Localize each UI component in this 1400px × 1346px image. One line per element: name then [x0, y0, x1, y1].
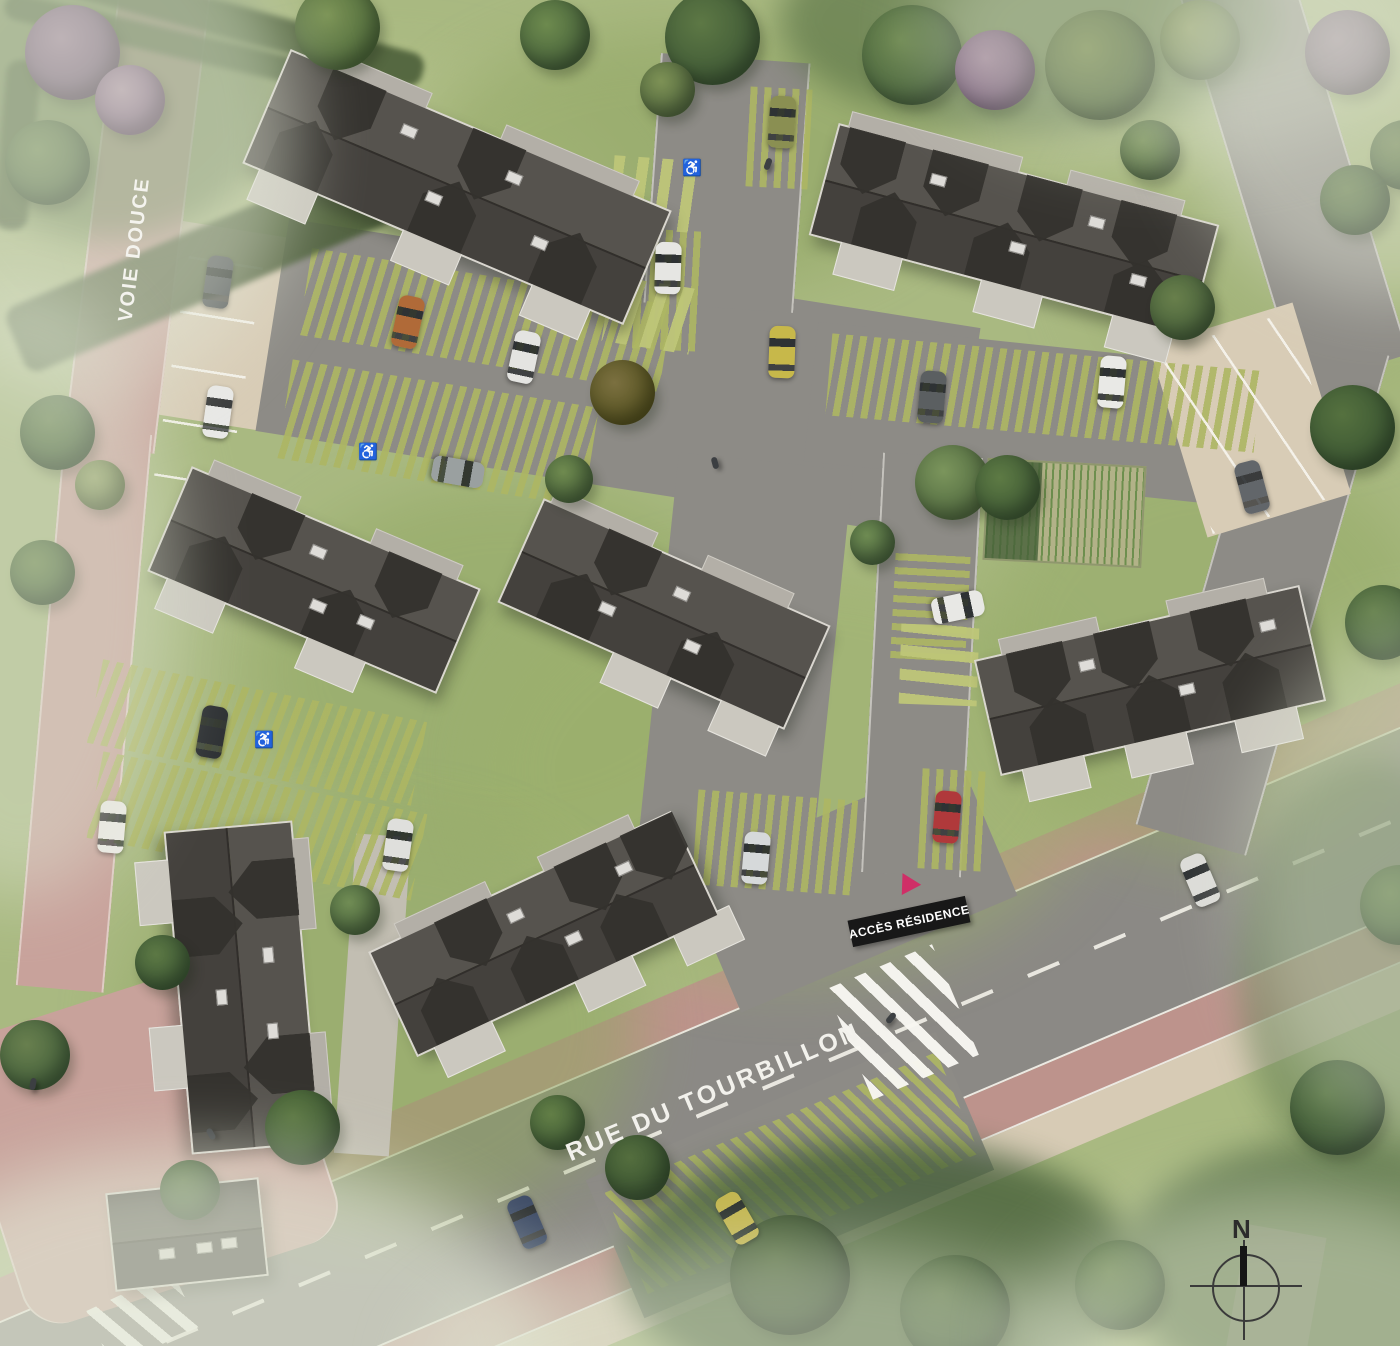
car [654, 242, 682, 295]
wheelchair-marking: ♿ [358, 442, 378, 462]
tree [1310, 385, 1395, 470]
car [768, 326, 796, 379]
tree [95, 65, 165, 135]
compass-rose: N [1188, 1212, 1308, 1342]
car [1097, 355, 1127, 409]
tree [265, 1090, 340, 1165]
parking-stalls [692, 790, 858, 896]
tree [160, 1160, 220, 1220]
tree [955, 30, 1035, 110]
tree [135, 935, 190, 990]
tree [20, 395, 95, 470]
tree [850, 520, 895, 565]
tree [330, 885, 380, 935]
tree [1045, 10, 1155, 120]
tree [1160, 0, 1240, 80]
roof-window [195, 1241, 212, 1254]
tree [975, 455, 1040, 520]
tree [862, 5, 962, 105]
wheelchair-marking: ♿ [682, 158, 702, 178]
tree [1320, 165, 1390, 235]
tree [1305, 10, 1390, 95]
crosswalk [899, 624, 980, 707]
roof-window [158, 1247, 175, 1260]
tree [75, 460, 125, 510]
tree [1290, 1060, 1385, 1155]
tree [1075, 1240, 1165, 1330]
car [917, 370, 947, 424]
wheelchair-marking: ♿ [254, 730, 274, 750]
roof-window [216, 988, 228, 1005]
car [767, 95, 797, 149]
roof-window [221, 1236, 238, 1249]
roof-window [263, 946, 275, 963]
compass-north-label: N [1232, 1214, 1251, 1245]
compass-north-arrow [1240, 1246, 1247, 1286]
tree [640, 62, 695, 117]
tree [590, 360, 655, 425]
tree [1120, 120, 1180, 180]
site-plan: ♿♿♿ VOIE DOUCE ACCÈS RÉSIDENCE N RUE DU … [0, 0, 1400, 1346]
roof-window [267, 1022, 279, 1039]
car [741, 831, 771, 885]
generated-scene: ♿♿♿ [0, 0, 1400, 1346]
tree [545, 455, 593, 503]
tree [1150, 275, 1215, 340]
tree [5, 120, 90, 205]
tree [520, 0, 590, 70]
car [505, 1193, 549, 1251]
car [932, 790, 962, 844]
tree [10, 540, 75, 605]
car [97, 800, 127, 854]
